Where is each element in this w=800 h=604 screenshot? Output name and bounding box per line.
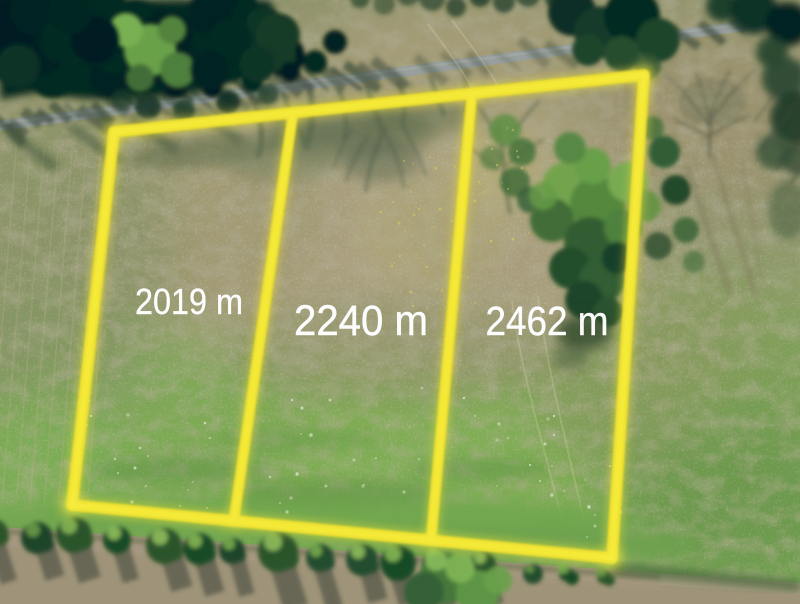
svg-text:2019 m: 2019 m [135,281,243,322]
svg-text:2462 m: 2462 m [486,298,609,344]
svg-text:2240 m: 2240 m [294,297,428,345]
